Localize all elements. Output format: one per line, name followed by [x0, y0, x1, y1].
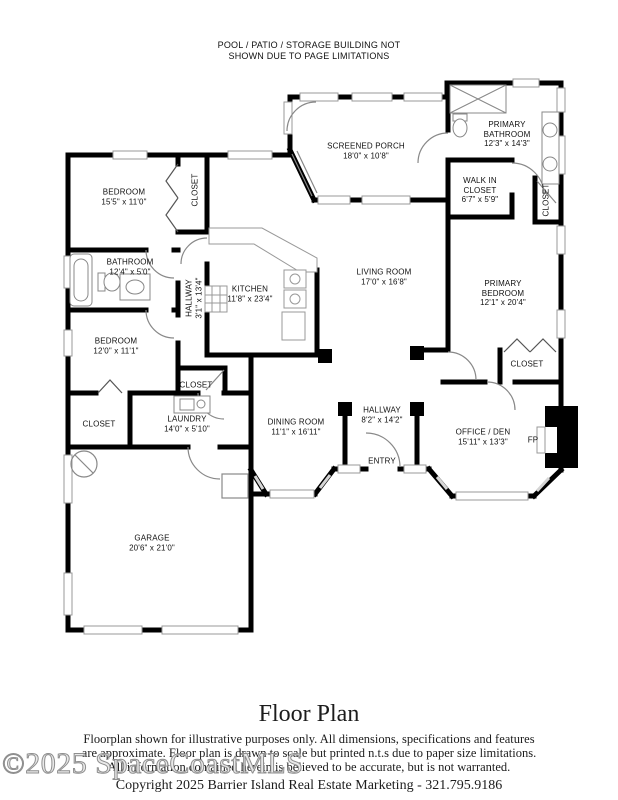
room-label-primary-bathroom: PRIMARY BATHROOM 12'3" x 14'3": [472, 120, 542, 149]
disclaimer-line-1: Floorplan shown for illustrative purpose…: [0, 733, 618, 746]
room-label-entry: ENTRY: [368, 456, 396, 466]
room-label-office-den: OFFICE / DEN 15'11" x 13'3": [456, 428, 511, 447]
room-label-hallway-main: HALLWAY 8'2" x 14'2": [361, 406, 402, 425]
room-label-closet-hall: CLOSET: [180, 380, 213, 390]
room-label-walk-in-closet: WALK IN CLOSET 6'7" x 5'9": [454, 176, 506, 205]
base-cabinet: [282, 312, 305, 340]
mls-watermark: ©2025 SpaceCoastMLS: [2, 748, 303, 780]
kitchen-counter: [209, 228, 317, 272]
bay-window-glass: [255, 475, 549, 491]
garage-fixtures: [71, 451, 248, 498]
page-title: Floor Plan: [0, 701, 618, 727]
room-label-closet-bed2: CLOSET: [83, 419, 116, 429]
room-label-dining-room: DINING ROOM 11'1" x 16'11": [268, 418, 325, 437]
room-label-bedroom-2: BEDROOM 12'0" x 11'1": [93, 337, 138, 356]
room-label-closet-1: CLOSET: [190, 174, 200, 207]
room-label-closet-right: CLOSET: [541, 184, 551, 217]
room-label-bedroom-1: BEDROOM 15'5" x 11'0": [101, 188, 146, 207]
room-label-living-room: LIVING ROOM 17'0" x 16'8": [357, 268, 412, 287]
room-label-garage: GARAGE 20'6" x 21'0": [129, 534, 175, 553]
range: [205, 286, 227, 312]
equipment-pad: [222, 474, 248, 498]
room-label-closet-primary: CLOSET: [511, 359, 544, 369]
room-label-fireplace: FP: [528, 435, 539, 445]
copyright-line: Copyright 2025 Barrier Island Real Estat…: [0, 778, 618, 793]
floor-plan-page: { "notice": { "line1": "POOL / PATIO / S…: [0, 0, 618, 800]
room-label-hallway-west: HALLWAY 3'1" x 13'4": [185, 277, 204, 318]
room-label-kitchen: KITCHEN 11'8" x 23'4": [227, 285, 272, 304]
room-label-primary-bedroom: PRIMARY BEDROOM 12'1" x 20'4": [474, 279, 532, 308]
fireplace: [537, 406, 578, 468]
room-label-screened-porch: SCREENED PORCH 18'0" x 10'8": [327, 142, 405, 161]
room-label-laundry: LAUNDRY 14'0" x 5'10": [164, 415, 210, 434]
laundry-fixtures: [174, 396, 210, 413]
room-label-bathroom: BATHROOM 12'4" x 5'0": [107, 258, 154, 277]
